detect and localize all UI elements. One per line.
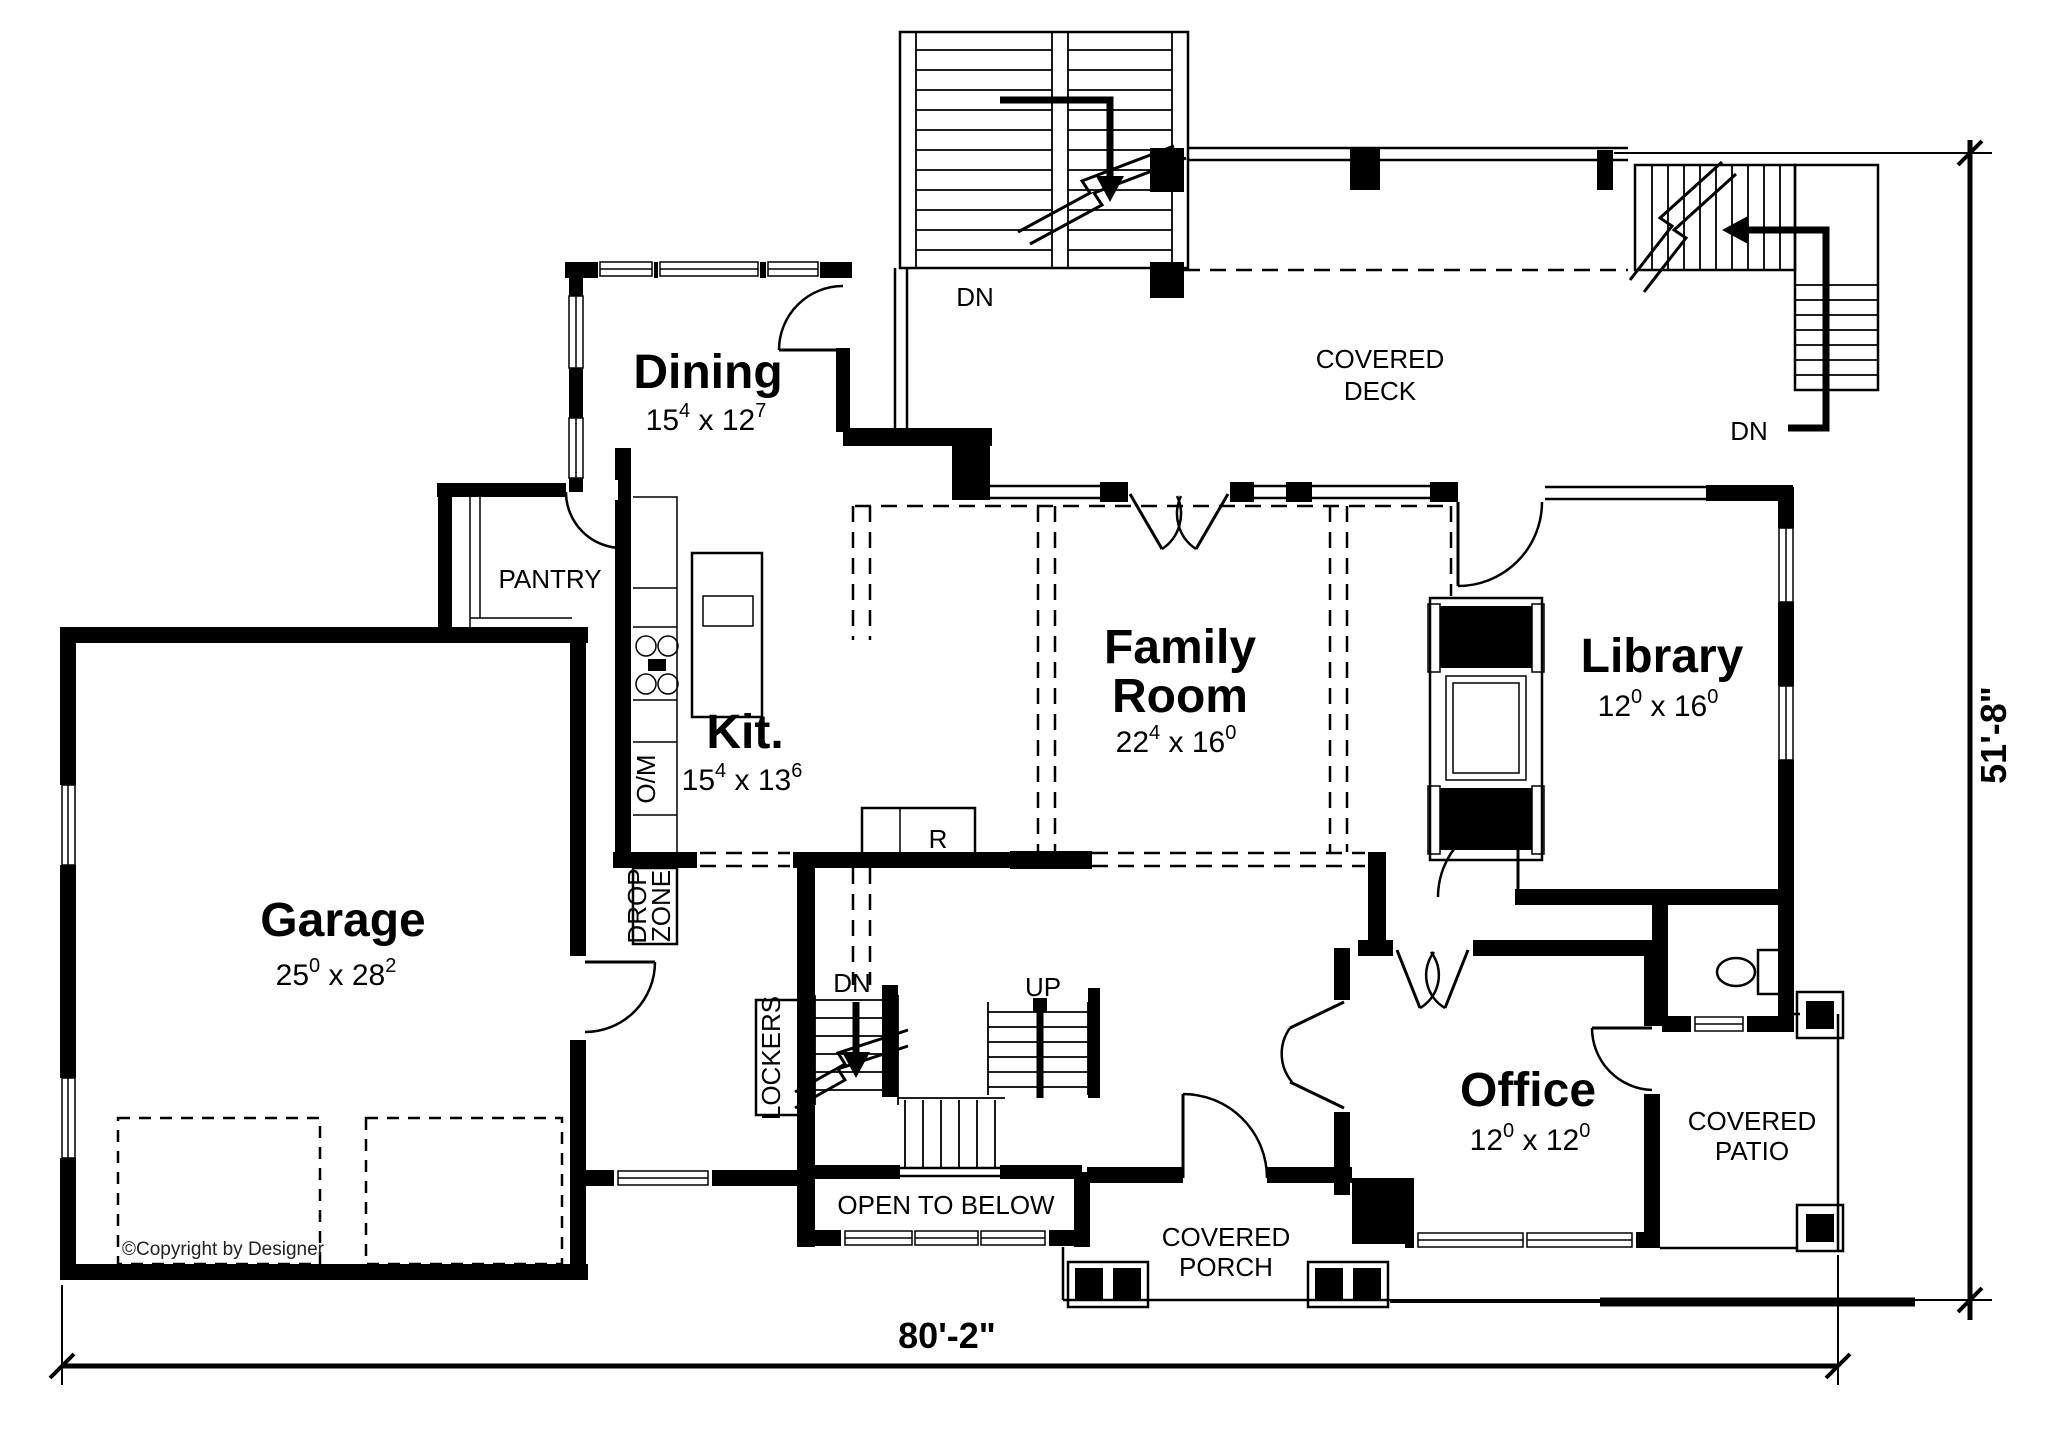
double-door-arcs <box>1282 1028 1292 1082</box>
stove-burner <box>636 636 656 656</box>
floor-plan: COVERED DECK DN DN <box>0 0 2048 1448</box>
family-room-label-1: Family <box>1104 621 1256 674</box>
door-arc <box>566 492 622 548</box>
door-arc <box>779 286 843 350</box>
lockers-label: LOCKERS <box>756 996 786 1120</box>
pantry-label: PANTRY <box>498 564 601 594</box>
covered-porch-label-2: PORCH <box>1179 1252 1273 1282</box>
kitchen-island <box>692 553 762 717</box>
drop-zone-label-2: ZONE <box>646 870 676 942</box>
office-dims: 120 x 120 <box>1470 1120 1591 1157</box>
powder-room <box>1652 897 1793 1034</box>
stove-control <box>648 659 666 671</box>
stair-break-symbol <box>1630 162 1736 292</box>
family-room-dims: 224 x 160 <box>1116 722 1237 759</box>
double-door-leaves <box>1397 950 1468 1008</box>
covered-deck-label-2: DECK <box>1344 376 1417 406</box>
office: Office 120 x 120 <box>1282 938 1662 1250</box>
kitchen-dims: 154 x 136 <box>682 760 803 797</box>
open-to-below-label: OPEN TO BELOW <box>837 1190 1055 1220</box>
floor-plan-page: COVERED DECK DN DN <box>0 0 2048 1448</box>
dining-dims: 154 x 127 <box>646 400 767 437</box>
covered-patio-label-1: COVERED <box>1688 1106 1817 1136</box>
island-sink <box>703 596 753 626</box>
deck-stair-left-dn-label: DN <box>956 282 994 312</box>
deck-stair-right: DN <box>1630 162 1878 446</box>
family-room: Family Room 224 x 160 <box>853 428 1458 985</box>
height-dimension-label: 51'-8" <box>1973 686 2014 784</box>
family-room-label-2: Room <box>1112 670 1248 723</box>
toilet <box>1717 958 1755 986</box>
kitchen: O/M R Kit. 154 x 136 <box>613 497 1092 866</box>
refrigerator-label: R <box>929 824 948 854</box>
covered-patio-label-2: PATIO <box>1715 1136 1789 1166</box>
double-door-arcs <box>1420 952 1445 1008</box>
oven-microwave-label: O/M <box>631 754 661 803</box>
deck-stair-left: DN <box>900 32 1188 312</box>
french-door-arcs <box>1162 496 1196 549</box>
deck-pillar <box>1597 150 1613 190</box>
stove-burner <box>658 674 678 694</box>
built-in-cabinet <box>1440 788 1532 850</box>
copyright-note: ©Copyright by Designer <box>122 1239 325 1260</box>
pantry: PANTRY <box>437 448 623 862</box>
stair-up-label: UP <box>1025 972 1061 1002</box>
open-to-below-bay: OPEN TO BELOW <box>806 1172 1090 1250</box>
door-arc <box>1458 502 1542 586</box>
stove-burner <box>636 674 656 694</box>
stove-burner <box>658 636 678 656</box>
kitchen-label: Kit. <box>706 706 783 759</box>
library-dims: 120 x 160 <box>1598 686 1719 723</box>
garage-dims: 250 x 282 <box>276 955 397 992</box>
door-arc <box>585 962 655 1032</box>
covered-deck-label-1: COVERED <box>1316 344 1445 374</box>
width-dimension-label: 80'-2" <box>898 1315 996 1356</box>
library-label: Library <box>1581 630 1744 683</box>
deck-pillar <box>1350 148 1380 190</box>
office-label: Office <box>1460 1064 1596 1117</box>
deck-stair-right-dn-label: DN <box>1730 416 1768 446</box>
stair-direction-arrow <box>1740 230 1826 428</box>
garage-label: Garage <box>260 894 425 947</box>
garage-door-bay <box>366 1118 562 1264</box>
dining-label: Dining <box>633 346 782 399</box>
built-in-cabinet <box>1440 606 1532 668</box>
garage: Garage 250 x 282 ©Copyright by Designer <box>56 635 655 1272</box>
front-door-arc <box>1183 1094 1267 1178</box>
covered-porch-label-1: COVERED <box>1162 1222 1291 1252</box>
